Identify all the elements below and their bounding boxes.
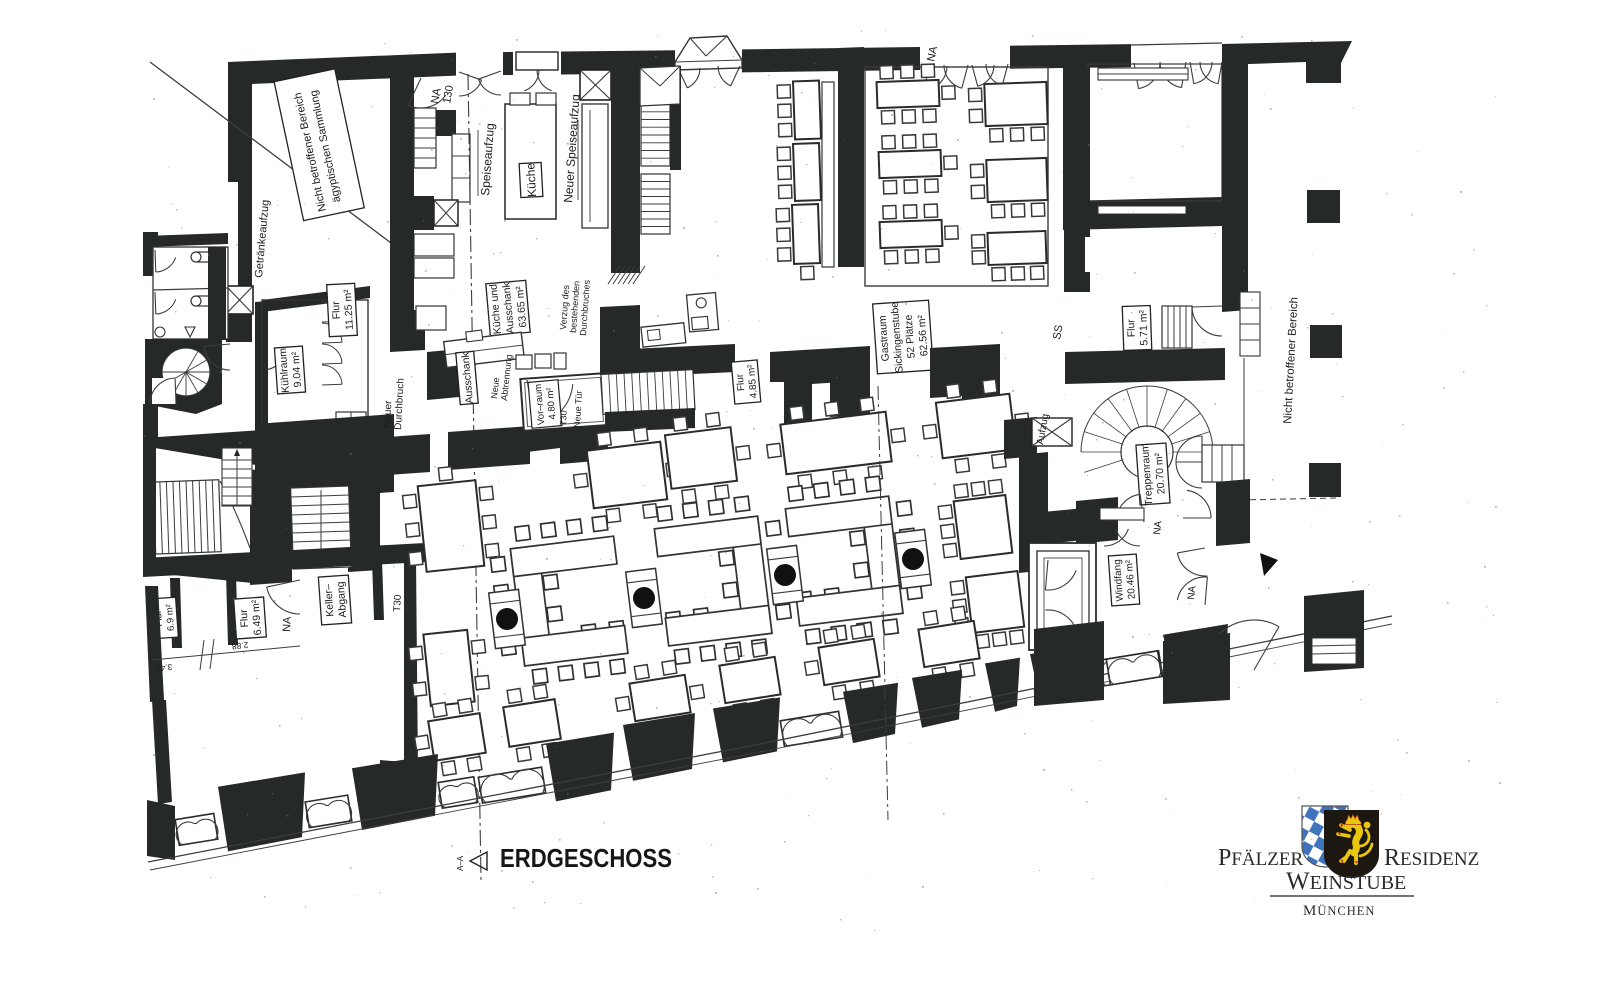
svg-text:T30: T30 <box>392 594 404 612</box>
svg-text:WEINSTUBE: WEINSTUBE <box>1286 868 1406 895</box>
svg-text:Küche: Küche <box>523 162 539 197</box>
svg-text:NA: NA <box>1152 520 1164 535</box>
svg-text:Flur: Flur <box>735 373 748 392</box>
svg-text:6.49 m²: 6.49 m² <box>250 599 264 636</box>
svg-text:Flur: Flur <box>330 300 343 319</box>
svg-text:5.71 m²: 5.71 m² <box>1137 309 1150 345</box>
svg-text:SS: SS <box>1051 324 1065 341</box>
svg-text:RESIDENZ: RESIDENZ <box>1384 845 1479 871</box>
svg-text:9.04 m²: 9.04 m² <box>290 351 304 388</box>
svg-text:T30: T30 <box>558 410 569 426</box>
svg-text:A–A: A–A <box>456 855 465 871</box>
svg-text:Neue Tür: Neue Tür <box>572 390 584 428</box>
svg-text:MÜNCHEN: MÜNCHEN <box>1303 903 1375 919</box>
svg-text:ERDGESCHOSS: ERDGESCHOSS <box>500 843 672 873</box>
svg-text:Abgang: Abgang <box>335 581 350 618</box>
svg-text:NA: NA <box>281 616 294 633</box>
svg-text:11.25 m²: 11.25 m² <box>342 289 356 331</box>
svg-text:Flur: Flur <box>238 608 251 627</box>
svg-text:2.88: 2.88 <box>231 640 249 652</box>
svg-text:Flur: Flur <box>1125 318 1138 337</box>
svg-text:6.9 m²: 6.9 m² <box>164 604 177 632</box>
svg-text:NA: NA <box>1186 585 1198 600</box>
svg-text:3.49: 3.49 <box>155 662 173 674</box>
